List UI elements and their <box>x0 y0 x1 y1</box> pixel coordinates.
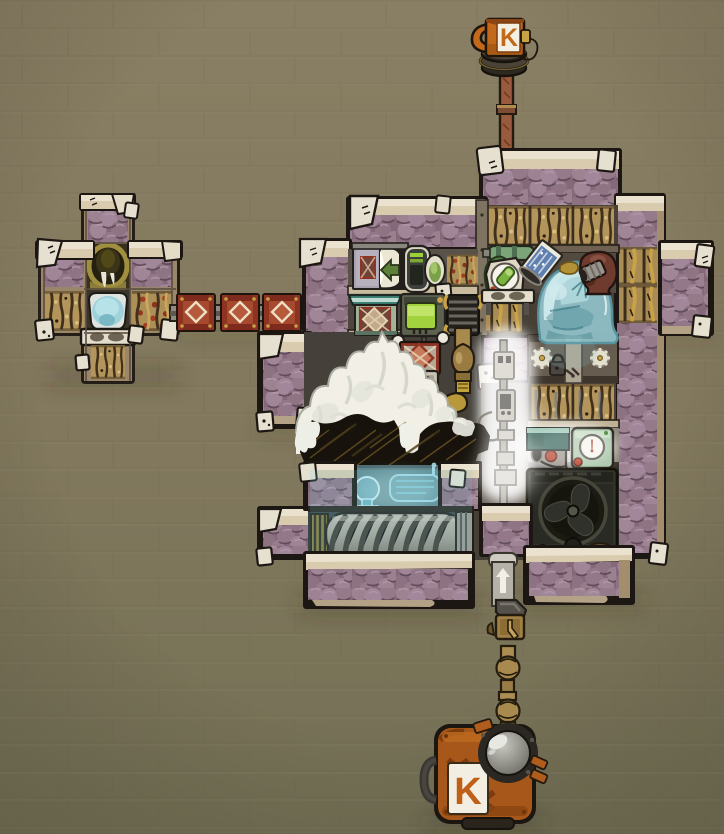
svg-text:K: K <box>454 771 482 813</box>
svg-text:K: K <box>500 24 518 52</box>
